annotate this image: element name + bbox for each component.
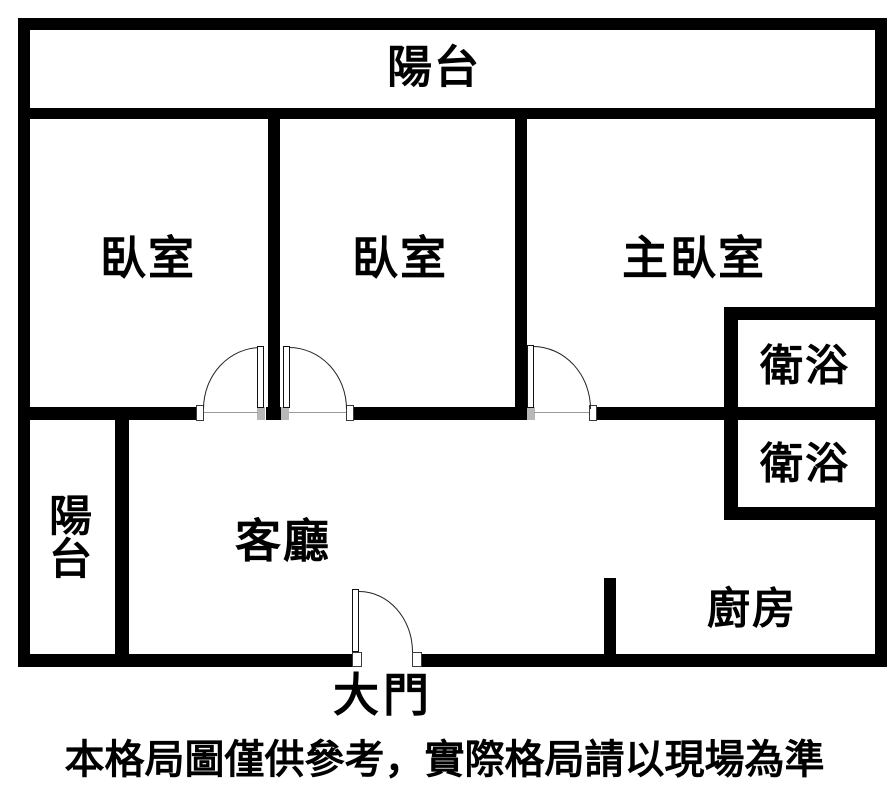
bedroom-1-door-leaf [257, 346, 264, 408]
sill-bedroom2 [281, 407, 289, 420]
wall-outer-top [18, 18, 887, 30]
label-bedroom-2: 臥室 [352, 235, 448, 281]
wall-kitchen-stub [604, 578, 616, 667]
bedroom-1-door-arc [203, 347, 261, 409]
bedroom-2-door-leaf [283, 346, 290, 408]
master-bedroom-door-arc [533, 346, 591, 409]
opening-line-master [534, 412, 589, 413]
wall-left-balcony-divider [115, 407, 129, 667]
wall-bedroom2-master-divider [515, 108, 527, 420]
wall-middle-segment-left [30, 407, 197, 420]
label-balcony-top: 陽台 [387, 45, 481, 90]
wall-outer-bottom-left [18, 654, 352, 667]
label-bedroom-1: 臥室 [100, 235, 196, 281]
label-entrance-door: 大門 [333, 659, 433, 725]
wall-bedroom1-bedroom2-divider [268, 108, 280, 420]
wall-outer-left [18, 18, 30, 667]
wall-bathroom-bottom [738, 507, 875, 520]
wall-balcony-top-bottom [30, 108, 875, 119]
wall-bathroom-top [738, 307, 875, 320]
label-living-room: 客廳 [235, 518, 331, 564]
opening-line-bedroom2 [289, 412, 346, 413]
jamb-bedroom2-right [346, 405, 354, 421]
entrance-door-leaf [352, 589, 359, 652]
label-bathroom-lower: 衛浴 [760, 444, 850, 487]
label-master-bedroom: 主臥室 [622, 235, 766, 281]
wall-middle-segment-center [352, 407, 529, 420]
label-bathroom-upper: 衛浴 [760, 346, 850, 389]
opening-line-bedroom1 [204, 412, 258, 413]
label-kitchen: 廚房 [707, 589, 797, 632]
wall-outer-bottom-right [422, 654, 887, 667]
bedroom-2-door-arc [289, 347, 347, 409]
master-bedroom-door-leaf [527, 345, 534, 408]
entrance-door-arc [359, 591, 413, 652]
wall-bathroom-left [724, 307, 738, 520]
disclaimer-text: 本格局圖僅供參考，實際格局請以現場為準 [65, 727, 825, 785]
label-balcony-left: 陽台 [45, 493, 88, 579]
wall-outer-right [875, 18, 887, 667]
floor-plan-canvas: 陽台 臥室 臥室 主臥室 衛浴 衛浴 陽台 客廳 廚房 大門 本格局圖僅供參考，… [0, 0, 889, 786]
